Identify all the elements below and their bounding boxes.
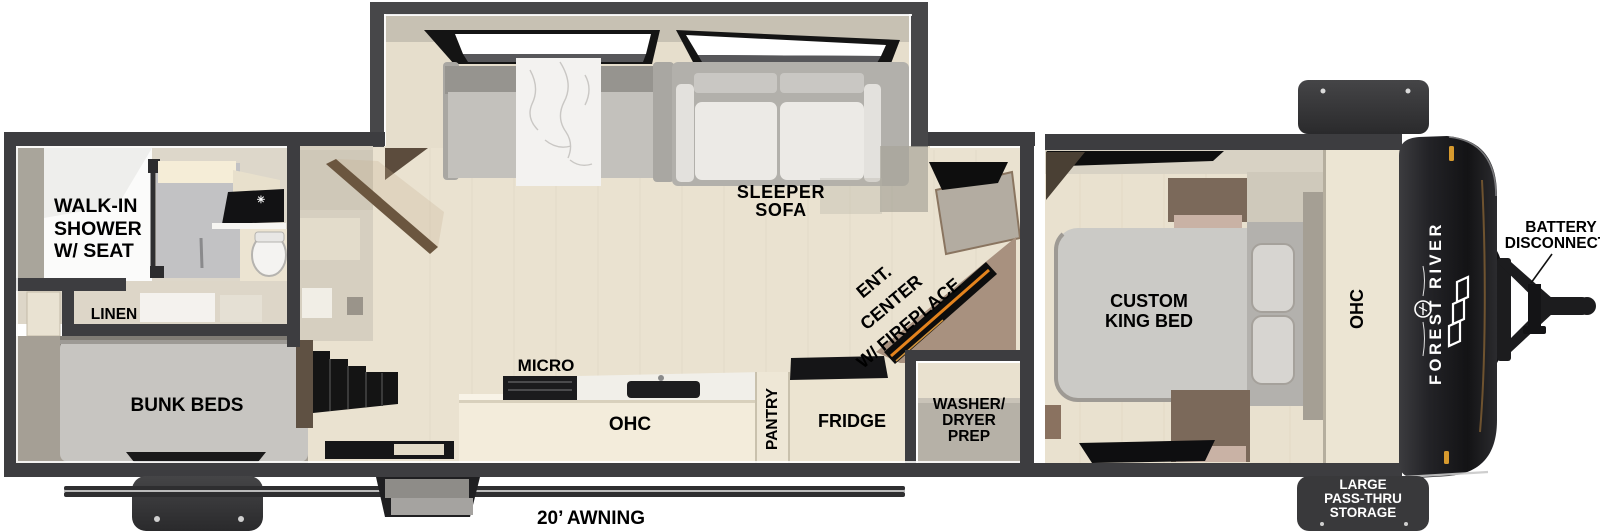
svg-text:MICRO: MICRO: [518, 356, 575, 375]
svg-text:SLEEPER: SLEEPER: [737, 182, 825, 202]
svg-text:SHOWER: SHOWER: [54, 218, 142, 240]
svg-text:WALK-IN: WALK-IN: [54, 195, 137, 217]
svg-text:W/ SEAT: W/ SEAT: [54, 240, 134, 262]
svg-text:FOREST RIVER: FOREST RIVER: [1427, 221, 1445, 385]
svg-text:FRIDGE: FRIDGE: [818, 411, 886, 431]
svg-text:DRYER: DRYER: [942, 412, 996, 429]
svg-text:LARGE: LARGE: [1339, 477, 1386, 492]
svg-text:OHC: OHC: [1347, 289, 1367, 329]
svg-text:SOFA: SOFA: [755, 200, 806, 220]
svg-text:BUNK BEDS: BUNK BEDS: [131, 395, 244, 416]
svg-text:CUSTOM: CUSTOM: [1110, 291, 1188, 311]
svg-text:PREP: PREP: [948, 428, 990, 445]
svg-text:PANTRY: PANTRY: [764, 387, 781, 450]
svg-text:DISCONNECT: DISCONNECT: [1505, 235, 1600, 252]
svg-text:LINEN: LINEN: [91, 306, 138, 323]
svg-text:STORAGE: STORAGE: [1330, 505, 1397, 520]
svg-text:20’ AWNING: 20’ AWNING: [537, 508, 645, 529]
svg-text:OHC: OHC: [609, 414, 652, 435]
svg-text:PASS-THRU: PASS-THRU: [1324, 491, 1402, 506]
svg-text:KING BED: KING BED: [1105, 311, 1193, 331]
svg-text:BATTERY: BATTERY: [1525, 219, 1597, 236]
svg-text:✳: ✳: [257, 195, 266, 206]
svg-text:WASHER/: WASHER/: [933, 396, 1006, 413]
